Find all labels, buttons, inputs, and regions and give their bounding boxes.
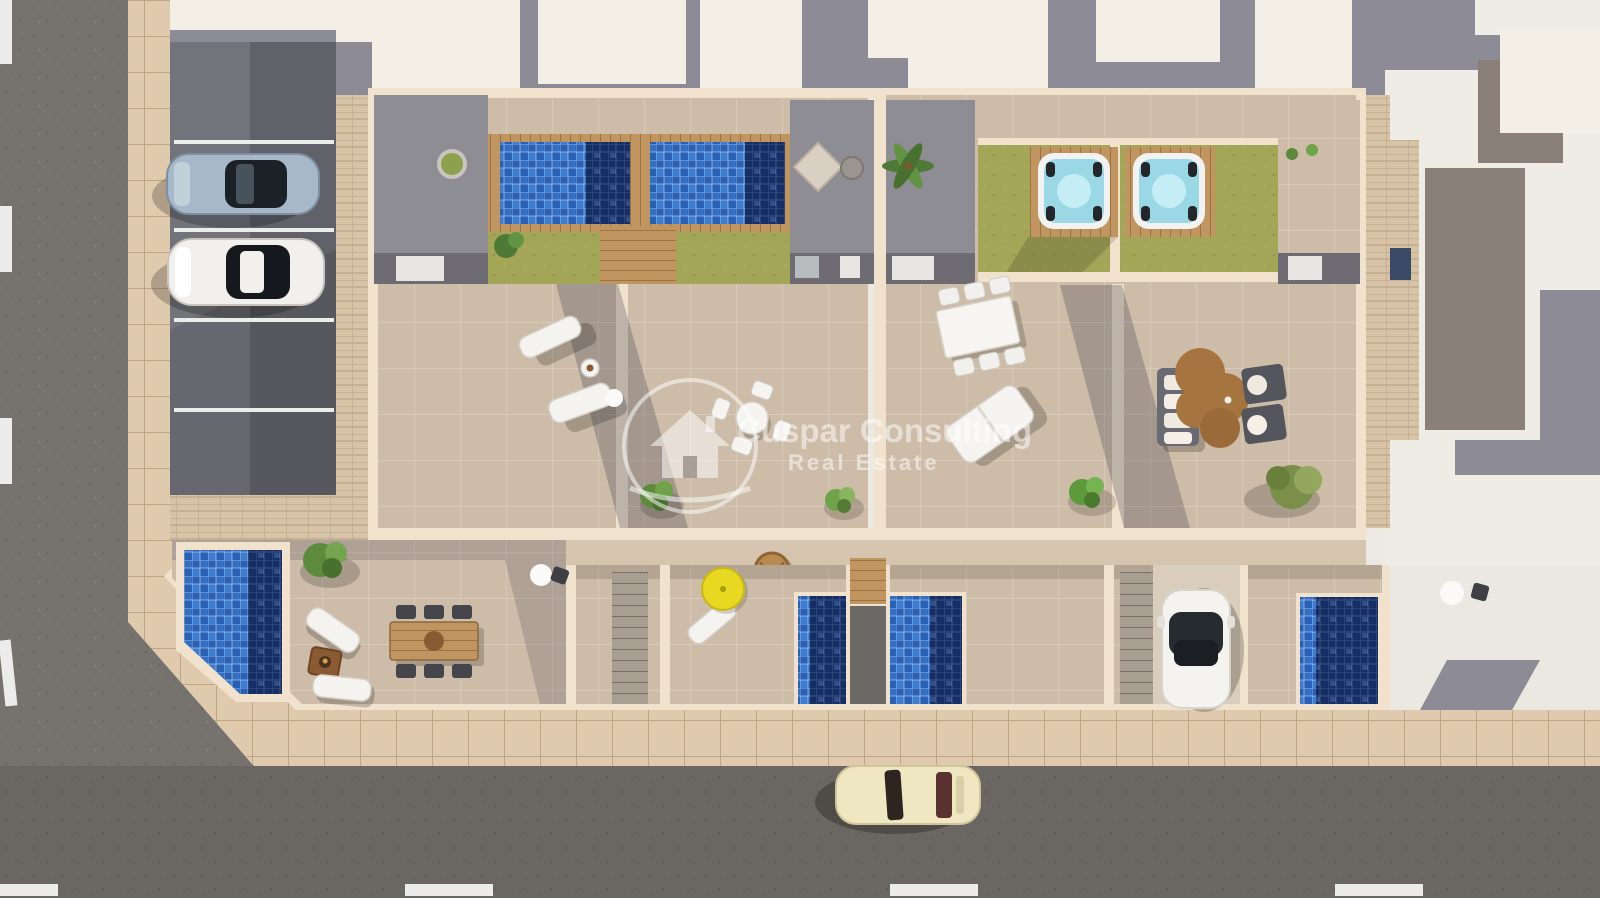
rooftops-top-row	[336, 0, 1390, 95]
roof	[372, 0, 520, 90]
rooftops-right-side	[1385, 0, 1600, 565]
wood-stairs	[850, 558, 886, 604]
round-ottoman	[605, 389, 623, 407]
fire-pit	[308, 647, 342, 679]
paver-path-horizontal	[170, 495, 336, 540]
plunge-pool-1	[794, 592, 850, 708]
roof	[1096, 0, 1220, 62]
roof-terrace-gray	[374, 95, 488, 253]
hot-tub-2	[1133, 153, 1205, 229]
plant	[1286, 148, 1298, 160]
car-driveway-white	[1157, 588, 1244, 712]
watermark-tagline: Real Estate	[788, 450, 940, 475]
roof	[1255, 0, 1352, 90]
stairs	[612, 572, 648, 704]
plant	[1306, 144, 1318, 156]
round-table	[530, 564, 552, 586]
wood-steps	[600, 226, 676, 284]
roof	[538, 0, 686, 84]
garden-dining-table	[390, 605, 484, 678]
lower-roof-band	[566, 540, 1366, 566]
skylight	[1387, 248, 1411, 280]
canopy-chair	[1241, 363, 1288, 404]
street-bottom-shade	[0, 766, 1600, 898]
plunge-pool-2	[886, 592, 966, 708]
passage-shadow	[850, 606, 886, 704]
round-planter	[439, 151, 465, 177]
watermark-brand: Cuspar Consulting	[737, 412, 1032, 449]
render-canvas: Cuspar Consulting Real Estate	[0, 0, 1600, 898]
roof	[700, 0, 802, 95]
lawn	[676, 232, 790, 284]
stairs	[1120, 572, 1154, 704]
hot-tub-1	[1038, 153, 1110, 229]
canopy-chair	[1241, 403, 1288, 444]
front-wall	[368, 528, 1366, 542]
parasol-gray	[841, 157, 863, 179]
corner-garden	[172, 540, 570, 708]
roof-shadow	[170, 30, 336, 42]
car-street-cream	[815, 766, 980, 834]
townhouse-block-right	[874, 88, 1390, 528]
aerial-render-scene: Cuspar Consulting Real Estate	[0, 0, 1600, 898]
round-table	[1440, 581, 1464, 605]
plunge-pool-3	[1296, 593, 1382, 708]
car-parked-white	[151, 239, 324, 318]
